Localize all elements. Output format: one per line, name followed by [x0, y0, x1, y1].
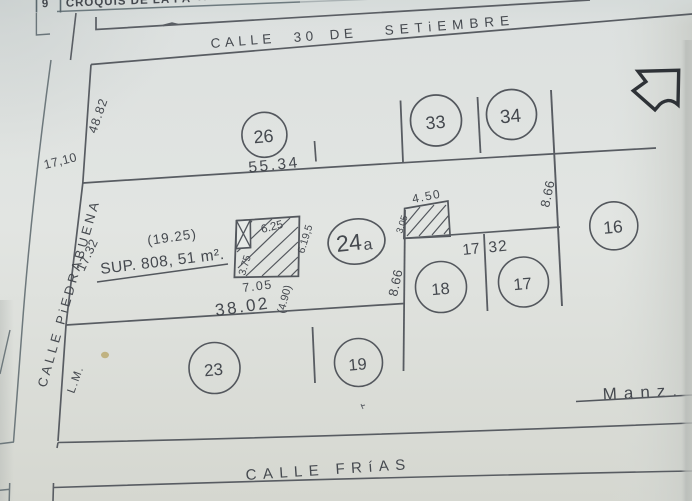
- svg-text:32: 32: [488, 238, 509, 257]
- svg-text:19: 19: [348, 355, 368, 375]
- svg-text:24: 24: [335, 228, 363, 257]
- svg-text:a: a: [363, 236, 374, 254]
- svg-text:9: 9: [42, 0, 50, 10]
- svg-text:30: 30: [293, 28, 318, 45]
- svg-text:33: 33: [425, 112, 447, 134]
- svg-text:16: 16: [602, 216, 623, 238]
- svg-text:34: 34: [499, 106, 522, 129]
- svg-text:18: 18: [431, 280, 451, 300]
- svg-text:17: 17: [462, 240, 481, 259]
- svg-text:26: 26: [253, 126, 275, 148]
- svg-text:17: 17: [513, 275, 533, 295]
- svg-text:DE: DE: [329, 25, 358, 42]
- svg-text:23: 23: [203, 360, 224, 381]
